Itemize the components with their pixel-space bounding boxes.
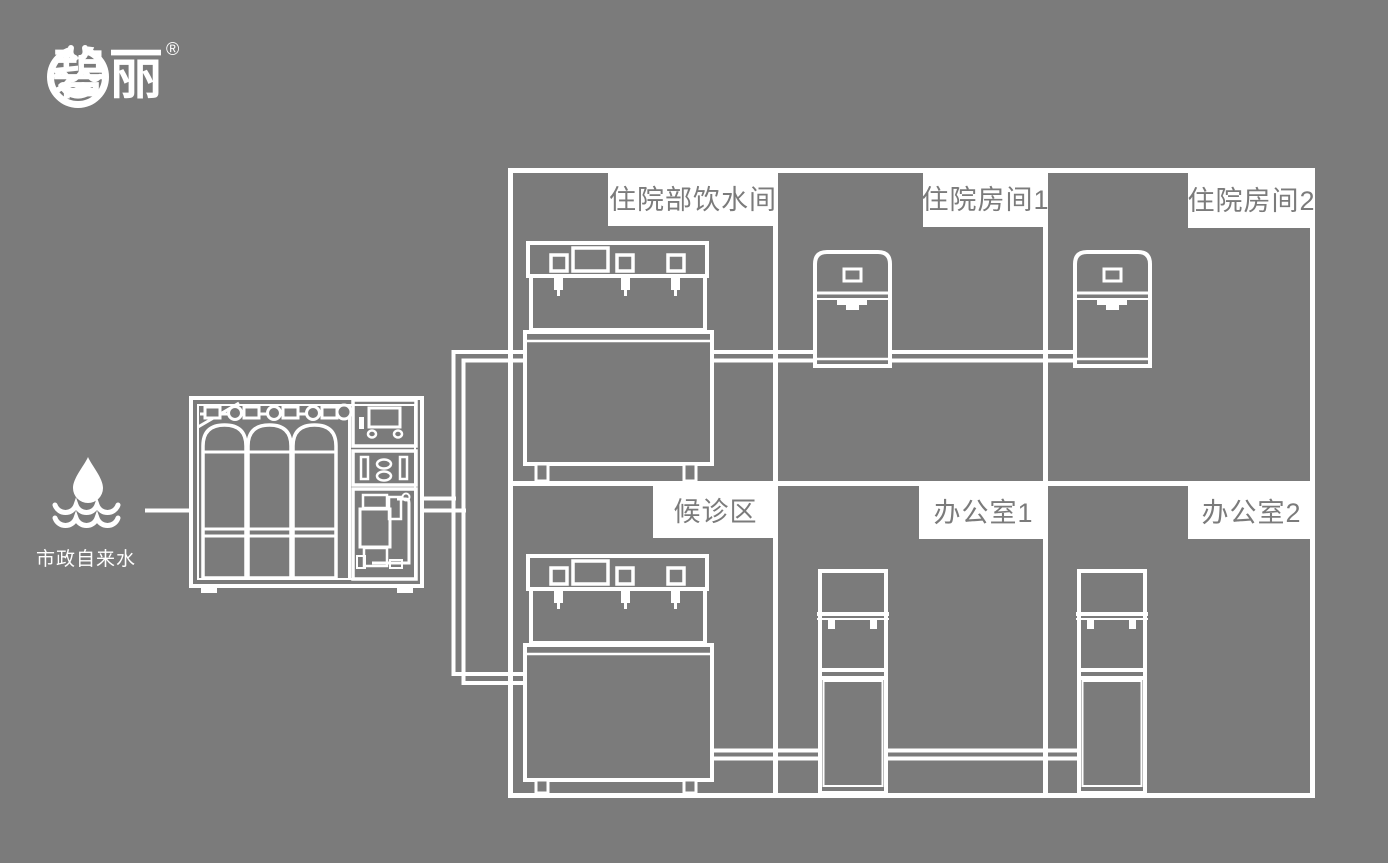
dispenser-tap (828, 620, 835, 629)
dispenser-foot (684, 780, 696, 793)
dispenser-button (1104, 269, 1121, 281)
countertop-dispenser-room1 (815, 252, 890, 366)
dispenser-foot (684, 464, 696, 481)
diagram-stage: 碧丽 ® 住院部饮水间 住院房间1 住院房间2 候诊区 办公室1 办公室2 市政… (0, 0, 1388, 863)
registered-trademark: ® (166, 40, 179, 58)
dispenser-foot (536, 780, 548, 793)
pipeline-drinking-machine-upper (525, 243, 712, 481)
machine-foot-left (201, 586, 217, 593)
control-switch (359, 417, 364, 429)
room-label-office-2: 办公室2 (1188, 481, 1315, 539)
room-label-inpatient-water-room: 住院部饮水间 (608, 168, 778, 226)
wave-line-2 (55, 518, 118, 526)
dispenser-spout (837, 299, 867, 305)
room-label-inpatient-room-1: 住院房间1 (923, 168, 1048, 227)
room-label-waiting-area: 候诊区 (653, 481, 778, 538)
countertop-dispenser-room2 (1075, 252, 1150, 366)
wave-line-1 (55, 505, 118, 513)
brand-logo: 碧丽 ® (44, 42, 179, 108)
water-treatment-machine (191, 398, 422, 593)
room-label-office-1: 办公室1 (919, 481, 1048, 539)
machine-foot-right (397, 586, 413, 593)
filter-tanks (203, 425, 336, 578)
piping-diagram-svg (0, 0, 1388, 863)
water-cup-icon (44, 42, 112, 110)
tank-2 (248, 425, 291, 578)
dispenser-tap (870, 620, 877, 629)
water-drop-over-waves-icon (55, 457, 118, 526)
floor-dispenser-office2 (1076, 571, 1148, 793)
dispenser-cabinet (525, 645, 712, 780)
water-drop (73, 457, 103, 503)
dispenser-tap (1087, 620, 1094, 629)
dispenser-foot (536, 464, 548, 481)
dispenser-spout (1097, 299, 1127, 305)
water-source-label: 市政自来水 (36, 544, 154, 571)
dispenser-tap (1129, 620, 1136, 629)
dispenser-button (844, 269, 861, 281)
tank-1 (203, 425, 246, 578)
floor-dispenser-office1 (817, 571, 889, 793)
room-label-inpatient-room-2: 住院房间2 (1188, 168, 1315, 228)
pipeline-drinking-machine-lower (525, 556, 712, 793)
dispenser-cabinet (525, 332, 712, 464)
tank-3 (293, 425, 336, 578)
